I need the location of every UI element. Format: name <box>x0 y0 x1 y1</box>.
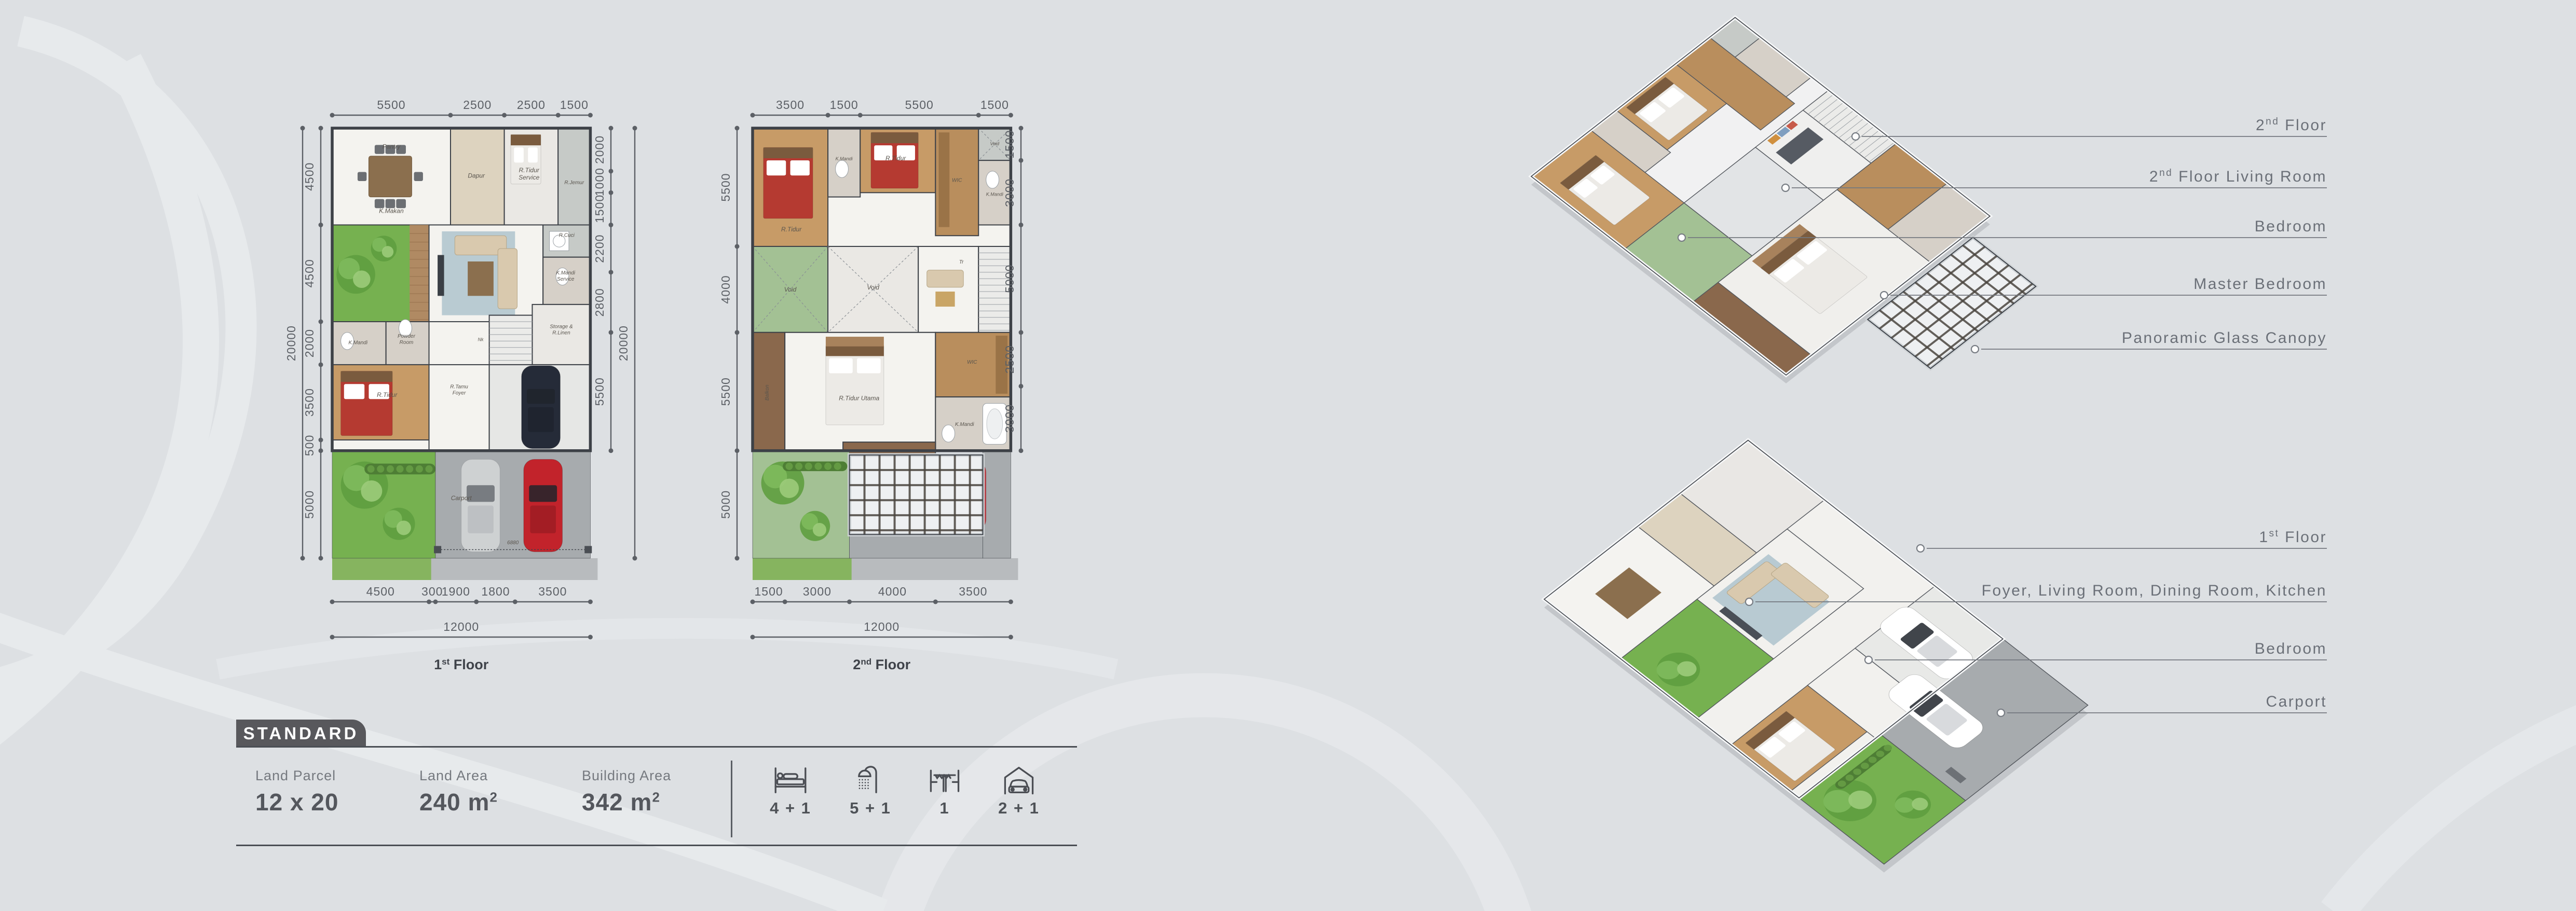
svg-text:3000: 3000 <box>803 585 832 598</box>
first-floor-plan: PantryK.MakanDapurR.TidurServiceR.JemurR… <box>284 98 637 672</box>
leader-dot <box>1865 656 1872 664</box>
feature-bedrooms: 4 + 1 <box>759 764 822 818</box>
svg-text:1800: 1800 <box>481 585 510 598</box>
svg-text:5500: 5500 <box>905 98 934 112</box>
svg-text:4500: 4500 <box>366 585 395 598</box>
leader-dot <box>1997 709 2005 716</box>
spec-vertical-divider <box>731 761 732 837</box>
room-label: WIC <box>967 360 977 365</box>
room-label: Pantry <box>383 143 401 150</box>
room-label: Balkon <box>765 384 770 401</box>
stat-land-area: Land Area 240 m2 <box>419 768 575 816</box>
room-driveway-right <box>983 451 1011 558</box>
first-floor-3d-render: 1st FloorFoyer, Living Room, Dining Room… <box>1544 440 2327 873</box>
room-label: Dapur <box>468 172 485 179</box>
svg-text:1500: 1500 <box>560 98 589 112</box>
standard-badge: STANDARD <box>236 720 366 748</box>
room-label: R.TidurService <box>519 167 540 181</box>
stat-label: Building Area <box>582 768 738 784</box>
stat-building-area: Building Area 342 m2 <box>582 768 738 816</box>
room-label: R.Tidur <box>377 391 398 398</box>
render-label: Bedroom <box>2255 218 2327 235</box>
leader-dot <box>1971 346 1979 353</box>
render-label: 2nd Floor Living Room <box>2149 168 2327 185</box>
room-label: R.Tidur <box>885 155 906 162</box>
room-sitting-area <box>918 246 978 333</box>
svg-text:20000: 20000 <box>284 325 298 361</box>
feature-carport: 2 + 1 <box>988 764 1050 818</box>
bed-icon <box>772 764 809 796</box>
svg-text:2000: 2000 <box>303 329 316 357</box>
svg-text:2200: 2200 <box>593 234 606 263</box>
svg-text:3000: 3000 <box>1003 404 1016 433</box>
svg-text:1500: 1500 <box>830 98 858 112</box>
stat-land-parcel: Land Parcel 12 x 20 <box>255 768 411 816</box>
room-label: Carport <box>451 494 472 502</box>
room-label: WIC <box>952 178 962 184</box>
spec-divider-bottom <box>236 845 1077 846</box>
shower-icon <box>852 764 889 796</box>
render-label: Master Bedroom <box>2193 275 2327 293</box>
svg-text:5000: 5000 <box>303 490 316 519</box>
spec-divider-top <box>236 746 1077 748</box>
svg-text:1900: 1900 <box>442 585 470 598</box>
dining-table-icon <box>926 764 963 796</box>
render-label: Foyer, Living Room, Dining Room, Kitchen <box>1982 582 2327 599</box>
svg-text:3500: 3500 <box>776 98 805 112</box>
svg-text:20000: 20000 <box>617 325 630 361</box>
render-label: Panoramic Glass Canopy <box>2122 329 2327 347</box>
svg-text:5500: 5500 <box>377 98 405 112</box>
svg-text:1000: 1000 <box>593 168 606 196</box>
room-label: Void <box>990 141 1000 146</box>
render-label: 2nd Floor <box>2256 116 2327 134</box>
feature-dining: 1 <box>914 764 976 818</box>
room-label: K.Mandi <box>955 422 974 427</box>
room-label: Tr <box>959 259 964 265</box>
second-floor-plan: R.TidurK.MandiR.TidurWICVoidK.MandiVoidV… <box>719 98 1024 672</box>
svg-text:3500: 3500 <box>538 585 567 598</box>
stat-label: Land Parcel <box>255 768 411 784</box>
room-label: K.MandiService <box>556 270 575 282</box>
leader-dot <box>1782 184 1789 191</box>
svg-text:3000: 3000 <box>1003 178 1016 207</box>
svg-text:4000: 4000 <box>878 585 907 598</box>
second-floor-3d-render: 2nd Floor2nd Floor Living RoomBedroomMas… <box>1531 18 2327 429</box>
second-floor-plan-caption: 2nd Floor <box>853 657 910 672</box>
render-label: Carport <box>2266 693 2327 710</box>
room-label: K.Makan <box>379 208 404 215</box>
render-label: 1st Floor <box>2259 528 2327 546</box>
leader-dot <box>1746 598 1753 605</box>
svg-text:1500: 1500 <box>980 98 1009 112</box>
room-label: Storage &R.Linen <box>550 324 573 336</box>
svg-text:2500: 2500 <box>463 98 492 112</box>
svg-text:4500: 4500 <box>303 259 316 287</box>
feature-count: 1 <box>914 799 976 818</box>
feature-count: 2 + 1 <box>988 799 1050 818</box>
leader-dot <box>1880 292 1888 299</box>
svg-text:4000: 4000 <box>719 275 732 303</box>
svg-text:1500: 1500 <box>755 585 783 598</box>
room-driveway-below <box>850 534 983 558</box>
room-label: Void <box>784 286 797 293</box>
room-label: 6880 <box>507 540 519 546</box>
svg-text:5500: 5500 <box>593 377 606 406</box>
stat-value: 240 m2 <box>419 788 575 816</box>
svg-text:5500: 5500 <box>719 377 732 406</box>
room-label: R.Tidur <box>781 226 802 233</box>
svg-text:5500: 5500 <box>719 173 732 201</box>
stat-value: 12 x 20 <box>255 788 411 816</box>
room-label: K.Mandi <box>986 192 1004 197</box>
feature-bathrooms: 5 + 1 <box>839 764 902 818</box>
room-stairs <box>489 315 533 365</box>
render-label: Bedroom <box>2255 640 2327 657</box>
svg-text:1500: 1500 <box>593 195 606 223</box>
carport-icon <box>1000 764 1038 796</box>
leader-dot <box>1917 545 1924 552</box>
svg-text:3500: 3500 <box>303 388 316 417</box>
room-label: R.Jemur <box>564 180 584 186</box>
room-label: R.Tidur Utama <box>839 394 879 402</box>
leader-dot <box>1678 234 1685 241</box>
room-label: R.Cuci <box>559 232 575 238</box>
stat-value: 342 m2 <box>582 788 738 816</box>
feature-count: 5 + 1 <box>839 799 902 818</box>
svg-text:300: 300 <box>421 585 443 598</box>
svg-text:5000: 5000 <box>719 490 732 519</box>
svg-text:2800: 2800 <box>593 288 606 316</box>
svg-text:2500: 2500 <box>1003 345 1016 374</box>
svg-text:3500: 3500 <box>959 585 987 598</box>
first-floor-plan-caption: 1st Floor <box>434 657 489 672</box>
svg-text:12000: 12000 <box>864 620 899 633</box>
svg-text:1500: 1500 <box>1003 130 1016 159</box>
svg-text:500: 500 <box>303 435 316 456</box>
svg-text:2000: 2000 <box>593 135 606 164</box>
svg-text:4500: 4500 <box>303 162 316 191</box>
stat-label: Land Area <box>419 768 575 784</box>
svg-text:2500: 2500 <box>517 98 546 112</box>
feature-count: 4 + 1 <box>759 799 822 818</box>
room-label: K.Mandi <box>348 340 367 346</box>
floorplan-brochure: PantryK.MakanDapurR.TidurServiceR.JemurR… <box>0 0 2576 911</box>
svg-text:12000: 12000 <box>443 620 479 633</box>
room-label: PowderRoom <box>398 334 416 346</box>
leader-dot <box>1852 133 1859 140</box>
room-label: Nk <box>478 337 484 342</box>
room-label: Void <box>867 284 879 291</box>
room-foyer <box>429 365 489 451</box>
room-label: K.Mandi <box>836 156 853 161</box>
svg-text:5000: 5000 <box>1003 265 1016 293</box>
room-label: R.TamuFoyer <box>450 384 468 396</box>
